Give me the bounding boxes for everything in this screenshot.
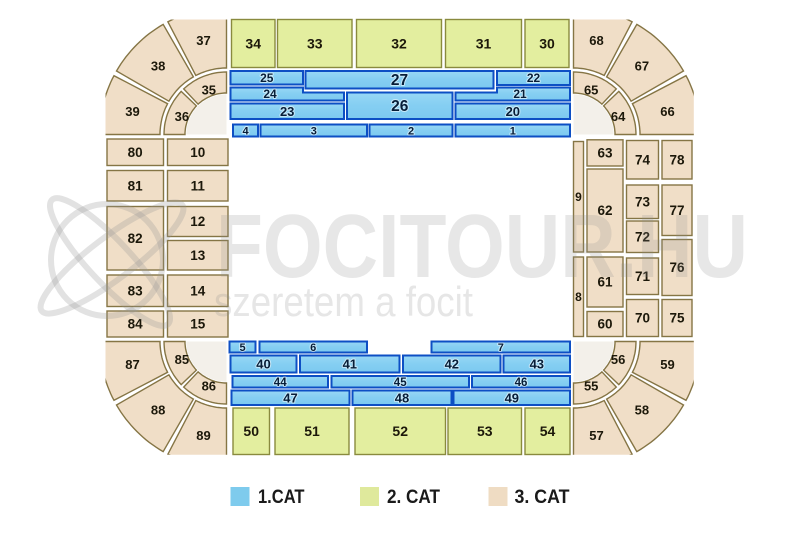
svg-text:63: 63 bbox=[597, 146, 613, 161]
svg-text:11: 11 bbox=[191, 179, 206, 194]
svg-text:83: 83 bbox=[128, 284, 144, 299]
svg-text:23: 23 bbox=[280, 104, 294, 119]
svg-text:87: 87 bbox=[125, 357, 139, 372]
svg-text:37: 37 bbox=[196, 33, 210, 48]
svg-text:82: 82 bbox=[128, 231, 143, 246]
svg-text:5: 5 bbox=[239, 342, 245, 354]
svg-text:35: 35 bbox=[202, 82, 216, 97]
svg-text:66: 66 bbox=[660, 104, 674, 119]
svg-text:59: 59 bbox=[660, 357, 674, 372]
svg-text:32: 32 bbox=[391, 35, 407, 51]
svg-text:50: 50 bbox=[243, 423, 259, 439]
svg-text:10: 10 bbox=[190, 145, 205, 160]
svg-text:42: 42 bbox=[445, 357, 459, 372]
svg-text:60: 60 bbox=[597, 317, 612, 332]
svg-text:25: 25 bbox=[260, 71, 274, 85]
svg-text:24: 24 bbox=[263, 87, 277, 101]
svg-text:88: 88 bbox=[151, 403, 165, 418]
svg-text:2. CAT: 2. CAT bbox=[387, 487, 440, 508]
svg-text:4: 4 bbox=[242, 125, 249, 137]
svg-text:53: 53 bbox=[477, 423, 493, 439]
svg-text:20: 20 bbox=[506, 104, 520, 119]
svg-text:36: 36 bbox=[175, 109, 189, 124]
svg-text:12: 12 bbox=[190, 214, 205, 229]
svg-text:43: 43 bbox=[530, 357, 544, 372]
svg-text:64: 64 bbox=[611, 109, 626, 124]
svg-text:58: 58 bbox=[635, 403, 649, 418]
svg-text:26: 26 bbox=[391, 98, 409, 115]
svg-text:22: 22 bbox=[527, 71, 541, 85]
svg-text:46: 46 bbox=[515, 377, 528, 389]
svg-text:68: 68 bbox=[589, 33, 603, 48]
svg-text:70: 70 bbox=[635, 311, 650, 326]
svg-text:67: 67 bbox=[635, 59, 649, 74]
svg-text:89: 89 bbox=[196, 428, 210, 443]
svg-text:54: 54 bbox=[540, 423, 556, 439]
svg-text:13: 13 bbox=[190, 248, 206, 263]
svg-text:65: 65 bbox=[584, 82, 598, 97]
svg-text:57: 57 bbox=[589, 428, 603, 443]
svg-text:2: 2 bbox=[408, 125, 414, 137]
svg-text:41: 41 bbox=[343, 357, 357, 372]
svg-text:48: 48 bbox=[395, 390, 409, 405]
svg-text:39: 39 bbox=[125, 104, 139, 119]
svg-text:szeretem a focit: szeretem a focit bbox=[214, 278, 473, 325]
svg-text:80: 80 bbox=[128, 145, 143, 160]
svg-text:34: 34 bbox=[245, 35, 261, 51]
svg-text:56: 56 bbox=[611, 352, 625, 367]
svg-text:85: 85 bbox=[175, 352, 189, 367]
svg-text:30: 30 bbox=[539, 35, 555, 51]
svg-text:38: 38 bbox=[151, 59, 165, 74]
svg-text:86: 86 bbox=[202, 379, 216, 394]
svg-text:49: 49 bbox=[505, 390, 519, 405]
svg-text:7: 7 bbox=[498, 342, 504, 354]
svg-text:15: 15 bbox=[190, 317, 206, 332]
svg-text:1.CAT: 1.CAT bbox=[258, 487, 305, 508]
svg-text:75: 75 bbox=[669, 311, 685, 326]
svg-text:44: 44 bbox=[274, 377, 287, 389]
svg-text:81: 81 bbox=[128, 179, 144, 194]
svg-text:31: 31 bbox=[476, 35, 492, 51]
svg-text:14: 14 bbox=[190, 284, 206, 299]
svg-text:45: 45 bbox=[394, 377, 407, 389]
svg-text:33: 33 bbox=[307, 35, 323, 51]
svg-text:3. CAT: 3. CAT bbox=[515, 487, 570, 508]
svg-text:3: 3 bbox=[311, 125, 317, 137]
svg-text:27: 27 bbox=[391, 72, 408, 89]
svg-text:40: 40 bbox=[256, 357, 270, 372]
svg-text:6: 6 bbox=[310, 342, 316, 354]
svg-text:1: 1 bbox=[510, 125, 516, 137]
svg-text:52: 52 bbox=[392, 423, 408, 439]
svg-text:78: 78 bbox=[669, 153, 685, 168]
svg-text:47: 47 bbox=[283, 390, 297, 405]
svg-text:55: 55 bbox=[584, 379, 598, 394]
svg-text:21: 21 bbox=[513, 87, 527, 101]
svg-text:51: 51 bbox=[304, 423, 320, 439]
svg-text:74: 74 bbox=[635, 153, 651, 168]
